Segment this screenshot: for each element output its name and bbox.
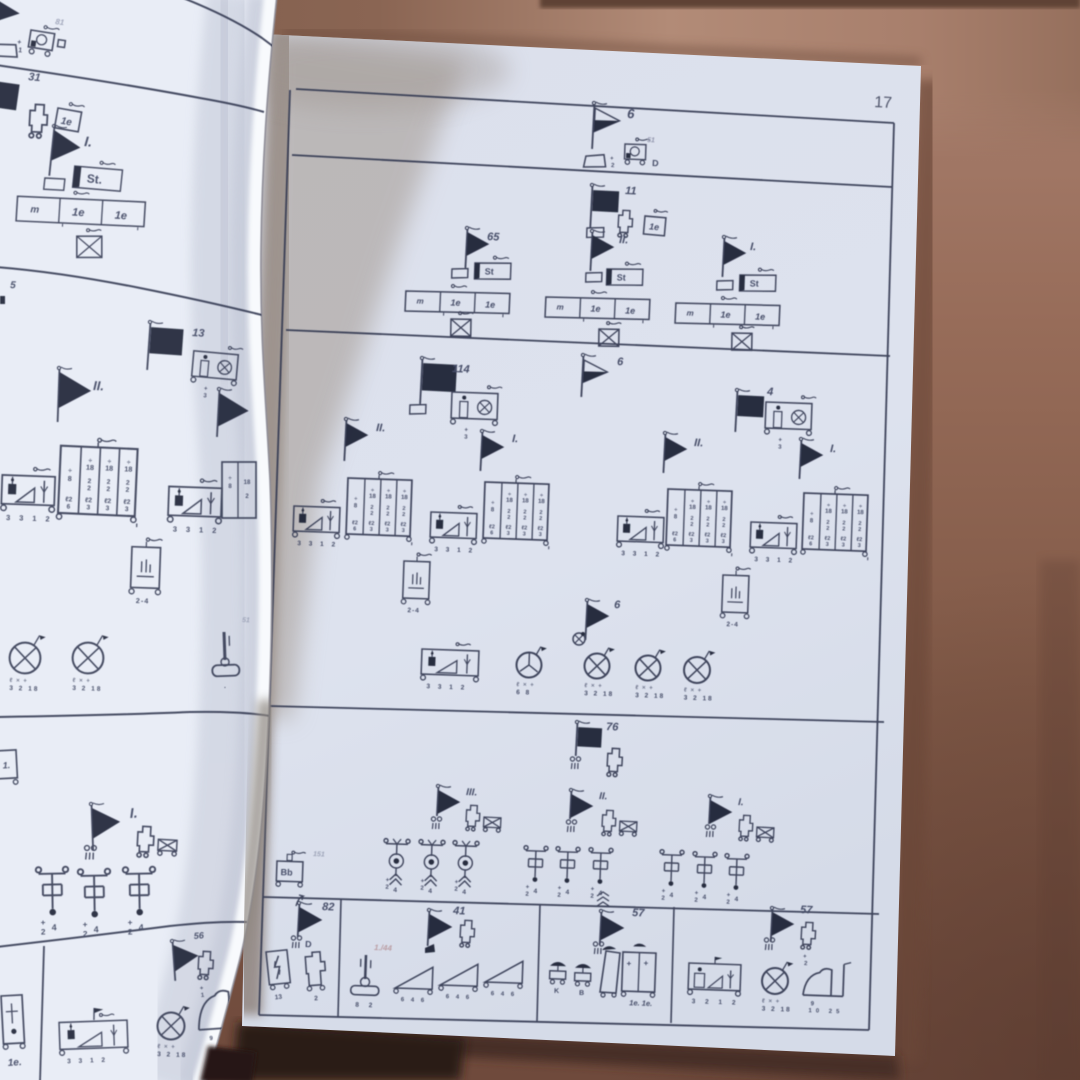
- svg-text:3: 3: [826, 542, 829, 548]
- svg-text:3: 3: [370, 527, 373, 533]
- svg-text:Bb: Bb: [280, 867, 293, 877]
- svg-text:ℓ2: ℓ2: [123, 499, 131, 506]
- svg-text:+: +: [610, 156, 615, 162]
- svg-text:18: 18: [506, 498, 514, 504]
- svg-text:1e: 1e: [720, 309, 730, 319]
- svg-text:2: 2: [125, 487, 129, 494]
- svg-text:18: 18: [689, 505, 697, 511]
- svg-text:+: +: [200, 986, 205, 992]
- svg-text:2-4: 2-4: [407, 607, 420, 614]
- svg-text:1e: 1e: [625, 305, 635, 315]
- svg-text:2: 2: [826, 526, 829, 532]
- svg-text:3 3 1 2: 3 3 1 2: [6, 513, 53, 524]
- svg-text:18: 18: [705, 505, 713, 511]
- svg-text:2: 2: [370, 511, 373, 517]
- svg-text:114: 114: [452, 363, 470, 376]
- svg-text:2: 2: [611, 163, 616, 169]
- svg-text:2: 2: [107, 479, 111, 486]
- svg-text:II.: II.: [694, 437, 704, 449]
- svg-text:18: 18: [124, 464, 132, 473]
- svg-text:ℓ × +: ℓ × +: [683, 688, 702, 695]
- svg-text:3: 3: [523, 531, 526, 537]
- svg-text:56: 56: [193, 930, 205, 941]
- svg-text:1e: 1e: [485, 299, 495, 309]
- svg-text:1e: 1e: [649, 221, 660, 232]
- svg-text:3: 3: [86, 504, 90, 511]
- svg-text:3: 3: [125, 506, 129, 513]
- svg-text:1e: 1e: [72, 206, 85, 219]
- svg-text:41: 41: [452, 905, 466, 918]
- svg-text:2: 2: [842, 526, 845, 532]
- svg-text:+: +: [626, 959, 631, 968]
- svg-text:31: 31: [28, 71, 41, 84]
- svg-text:3: 3: [402, 528, 405, 534]
- svg-text:18: 18: [86, 463, 94, 472]
- svg-text:St.: St.: [86, 171, 103, 187]
- svg-text:+: +: [83, 920, 88, 929]
- svg-text:4: 4: [462, 889, 466, 896]
- svg-text:18: 18: [401, 495, 409, 501]
- svg-text:2: 2: [722, 523, 725, 529]
- svg-text:3: 3: [507, 531, 510, 537]
- svg-text:I.: I.: [830, 443, 837, 455]
- svg-text:m: m: [686, 308, 694, 317]
- svg-text:2-4: 2-4: [726, 621, 739, 628]
- svg-text:51: 51: [647, 137, 655, 144]
- svg-text:2: 2: [690, 522, 693, 528]
- svg-text:11: 11: [625, 185, 637, 197]
- svg-text:3 2 18: 3 2 18: [584, 690, 614, 698]
- svg-text:76: 76: [606, 721, 620, 734]
- svg-text:I.: I.: [84, 133, 93, 150]
- svg-text:m: m: [30, 204, 40, 216]
- svg-text:3: 3: [858, 543, 861, 549]
- svg-text:6: 6: [353, 526, 356, 532]
- svg-text:6: 6: [809, 541, 812, 547]
- svg-text:1: 1: [201, 993, 206, 999]
- svg-text:+: +: [643, 959, 648, 968]
- svg-text:2: 2: [106, 486, 110, 493]
- svg-text:4: 4: [94, 924, 99, 934]
- svg-text:151: 151: [313, 851, 325, 859]
- svg-text:St: St: [617, 272, 626, 282]
- svg-text:I.: I.: [129, 805, 138, 821]
- svg-text:2: 2: [87, 478, 91, 485]
- svg-text:3 3 1 2: 3 3 1 2: [67, 1057, 108, 1065]
- svg-text:8 2: 8 2: [355, 1002, 376, 1010]
- svg-text:3: 3: [386, 527, 389, 533]
- svg-text:3: 3: [690, 538, 693, 544]
- svg-text:2: 2: [539, 516, 542, 522]
- svg-text:I.: I.: [750, 241, 757, 253]
- svg-text:.: .: [224, 683, 226, 690]
- svg-text:m: m: [416, 296, 424, 305]
- svg-text:6: 6: [490, 530, 493, 536]
- svg-text:3: 3: [842, 542, 845, 548]
- svg-text:÷: ÷: [354, 496, 357, 502]
- svg-text:18: 18: [538, 499, 546, 505]
- svg-text:2: 2: [126, 480, 130, 487]
- svg-text:3 2 18: 3 2 18: [762, 1006, 792, 1014]
- svg-text:18: 18: [369, 494, 377, 500]
- svg-text:ℓ × +: ℓ × +: [71, 678, 90, 685]
- svg-text:4: 4: [766, 386, 774, 398]
- svg-text:3: 3: [722, 539, 725, 545]
- svg-text:3: 3: [539, 532, 542, 538]
- svg-text:57: 57: [632, 907, 646, 920]
- svg-text:÷: ÷: [810, 511, 813, 517]
- svg-text:+: +: [128, 918, 133, 927]
- svg-text:4: 4: [734, 896, 738, 903]
- svg-text:II.: II.: [376, 422, 386, 434]
- svg-text:4: 4: [565, 889, 569, 896]
- svg-text:10 25: 10 25: [808, 1008, 843, 1015]
- svg-text:+: +: [803, 954, 808, 960]
- svg-text:17: 17: [874, 94, 893, 112]
- svg-text:ℓ × +: ℓ × +: [583, 683, 602, 690]
- svg-text:3 2 18: 3 2 18: [9, 685, 39, 693]
- svg-text:ℓ × +: ℓ × +: [761, 999, 780, 1006]
- svg-text:B: B: [579, 990, 584, 997]
- svg-text:65: 65: [487, 231, 501, 244]
- svg-text:D: D: [305, 939, 312, 949]
- svg-text:3 2 18: 3 2 18: [635, 692, 665, 700]
- svg-text:ℓ2: ℓ2: [85, 497, 93, 504]
- svg-text:3: 3: [706, 538, 709, 544]
- svg-text:2: 2: [507, 515, 510, 521]
- svg-text:3 2 18: 3 2 18: [72, 685, 102, 693]
- svg-text:18: 18: [385, 494, 393, 500]
- svg-text:D: D: [652, 158, 659, 168]
- svg-text:2: 2: [804, 961, 809, 967]
- svg-text:6 4 6: 6 4 6: [446, 994, 472, 1001]
- svg-text:2-4: 2-4: [136, 597, 150, 605]
- svg-text:3 3 1 2: 3 3 1 2: [173, 524, 220, 535]
- svg-text:I.: I.: [512, 433, 519, 445]
- svg-text:3 2 18: 3 2 18: [157, 1051, 187, 1059]
- svg-text:1e: 1e: [114, 210, 127, 223]
- svg-text:4: 4: [52, 922, 57, 932]
- svg-text:I.: I.: [738, 797, 744, 808]
- svg-text:ℓ2: ℓ2: [104, 498, 112, 505]
- svg-text:II.: II.: [599, 791, 608, 802]
- svg-text:ℓ × +: ℓ × +: [156, 1044, 175, 1051]
- svg-text:18: 18: [857, 510, 865, 516]
- svg-text:13: 13: [274, 994, 282, 1002]
- svg-text:3 3 1 2: 3 3 1 2: [434, 546, 475, 554]
- svg-text:1e. 1e.: 1e. 1e.: [629, 998, 652, 1008]
- svg-text:57: 57: [800, 904, 814, 917]
- svg-text:4: 4: [702, 894, 706, 901]
- svg-text:2: 2: [83, 930, 88, 939]
- svg-text:51: 51: [242, 617, 250, 624]
- svg-text:ℓ × +: ℓ × +: [634, 685, 653, 692]
- svg-text:2: 2: [386, 511, 389, 517]
- svg-text:18: 18: [841, 509, 849, 515]
- svg-text:4: 4: [533, 888, 537, 895]
- svg-text:1e: 1e: [450, 297, 460, 307]
- svg-text:82: 82: [322, 901, 335, 914]
- svg-text:3 3 1 2: 3 3 1 2: [426, 683, 467, 691]
- svg-text:18: 18: [721, 506, 729, 512]
- svg-text:2: 2: [706, 522, 709, 528]
- svg-text:÷: ÷: [491, 500, 494, 506]
- svg-text:4: 4: [393, 887, 397, 894]
- svg-text:4: 4: [669, 892, 673, 899]
- svg-text:m: m: [556, 302, 564, 311]
- svg-text:3 3 1 2: 3 3 1 2: [754, 556, 795, 564]
- svg-text:2: 2: [128, 928, 133, 937]
- svg-text:2: 2: [858, 527, 861, 533]
- svg-text:6: 6: [673, 537, 676, 543]
- svg-text:÷: ÷: [674, 507, 677, 513]
- svg-text:ℓ2: ℓ2: [65, 496, 73, 503]
- svg-text:2: 2: [402, 512, 405, 518]
- svg-text:6 4 6: 6 4 6: [491, 991, 517, 998]
- svg-text:3 3 1 2: 3 3 1 2: [621, 550, 662, 558]
- svg-text:4: 4: [139, 922, 144, 932]
- svg-text:18: 18: [105, 464, 113, 473]
- svg-text:+: +: [41, 918, 46, 927]
- svg-text:18: 18: [522, 498, 530, 504]
- svg-text:II.: II.: [93, 378, 104, 393]
- svg-text:2: 2: [87, 485, 91, 492]
- svg-text:ℓ × +: ℓ × +: [515, 682, 534, 689]
- svg-text:+: +: [17, 39, 24, 47]
- svg-text:13: 13: [192, 327, 205, 340]
- svg-text:1e.: 1e.: [7, 1057, 22, 1069]
- svg-text:18: 18: [825, 509, 833, 515]
- svg-text:II.: II.: [619, 234, 629, 246]
- svg-text:1e: 1e: [755, 311, 765, 321]
- svg-text:6 4 6: 6 4 6: [401, 997, 427, 1004]
- svg-text:III.: III.: [466, 787, 478, 798]
- svg-text:St: St: [750, 278, 759, 288]
- svg-text:8: 8: [67, 474, 71, 483]
- svg-text:5: 5: [10, 280, 17, 291]
- svg-text:K: K: [554, 988, 559, 995]
- svg-text:3 2 18: 3 2 18: [684, 695, 714, 703]
- svg-text:6: 6: [66, 503, 70, 510]
- svg-text:St: St: [485, 266, 494, 276]
- svg-text:1./44: 1./44: [374, 943, 393, 953]
- svg-text:18: 18: [244, 480, 251, 486]
- svg-text:3 3 1 2: 3 3 1 2: [297, 540, 338, 548]
- svg-text:1: 1: [18, 47, 24, 55]
- svg-text:2: 2: [41, 928, 46, 937]
- svg-text:1e: 1e: [590, 303, 600, 313]
- svg-text:1.: 1.: [3, 760, 11, 770]
- svg-text:81: 81: [55, 17, 66, 27]
- svg-text:2: 2: [523, 515, 526, 521]
- svg-text:ℓ × +: ℓ × +: [8, 678, 27, 685]
- svg-text:3: 3: [105, 505, 109, 512]
- svg-text:4: 4: [428, 888, 432, 895]
- svg-text:6 8: 6 8: [516, 689, 531, 697]
